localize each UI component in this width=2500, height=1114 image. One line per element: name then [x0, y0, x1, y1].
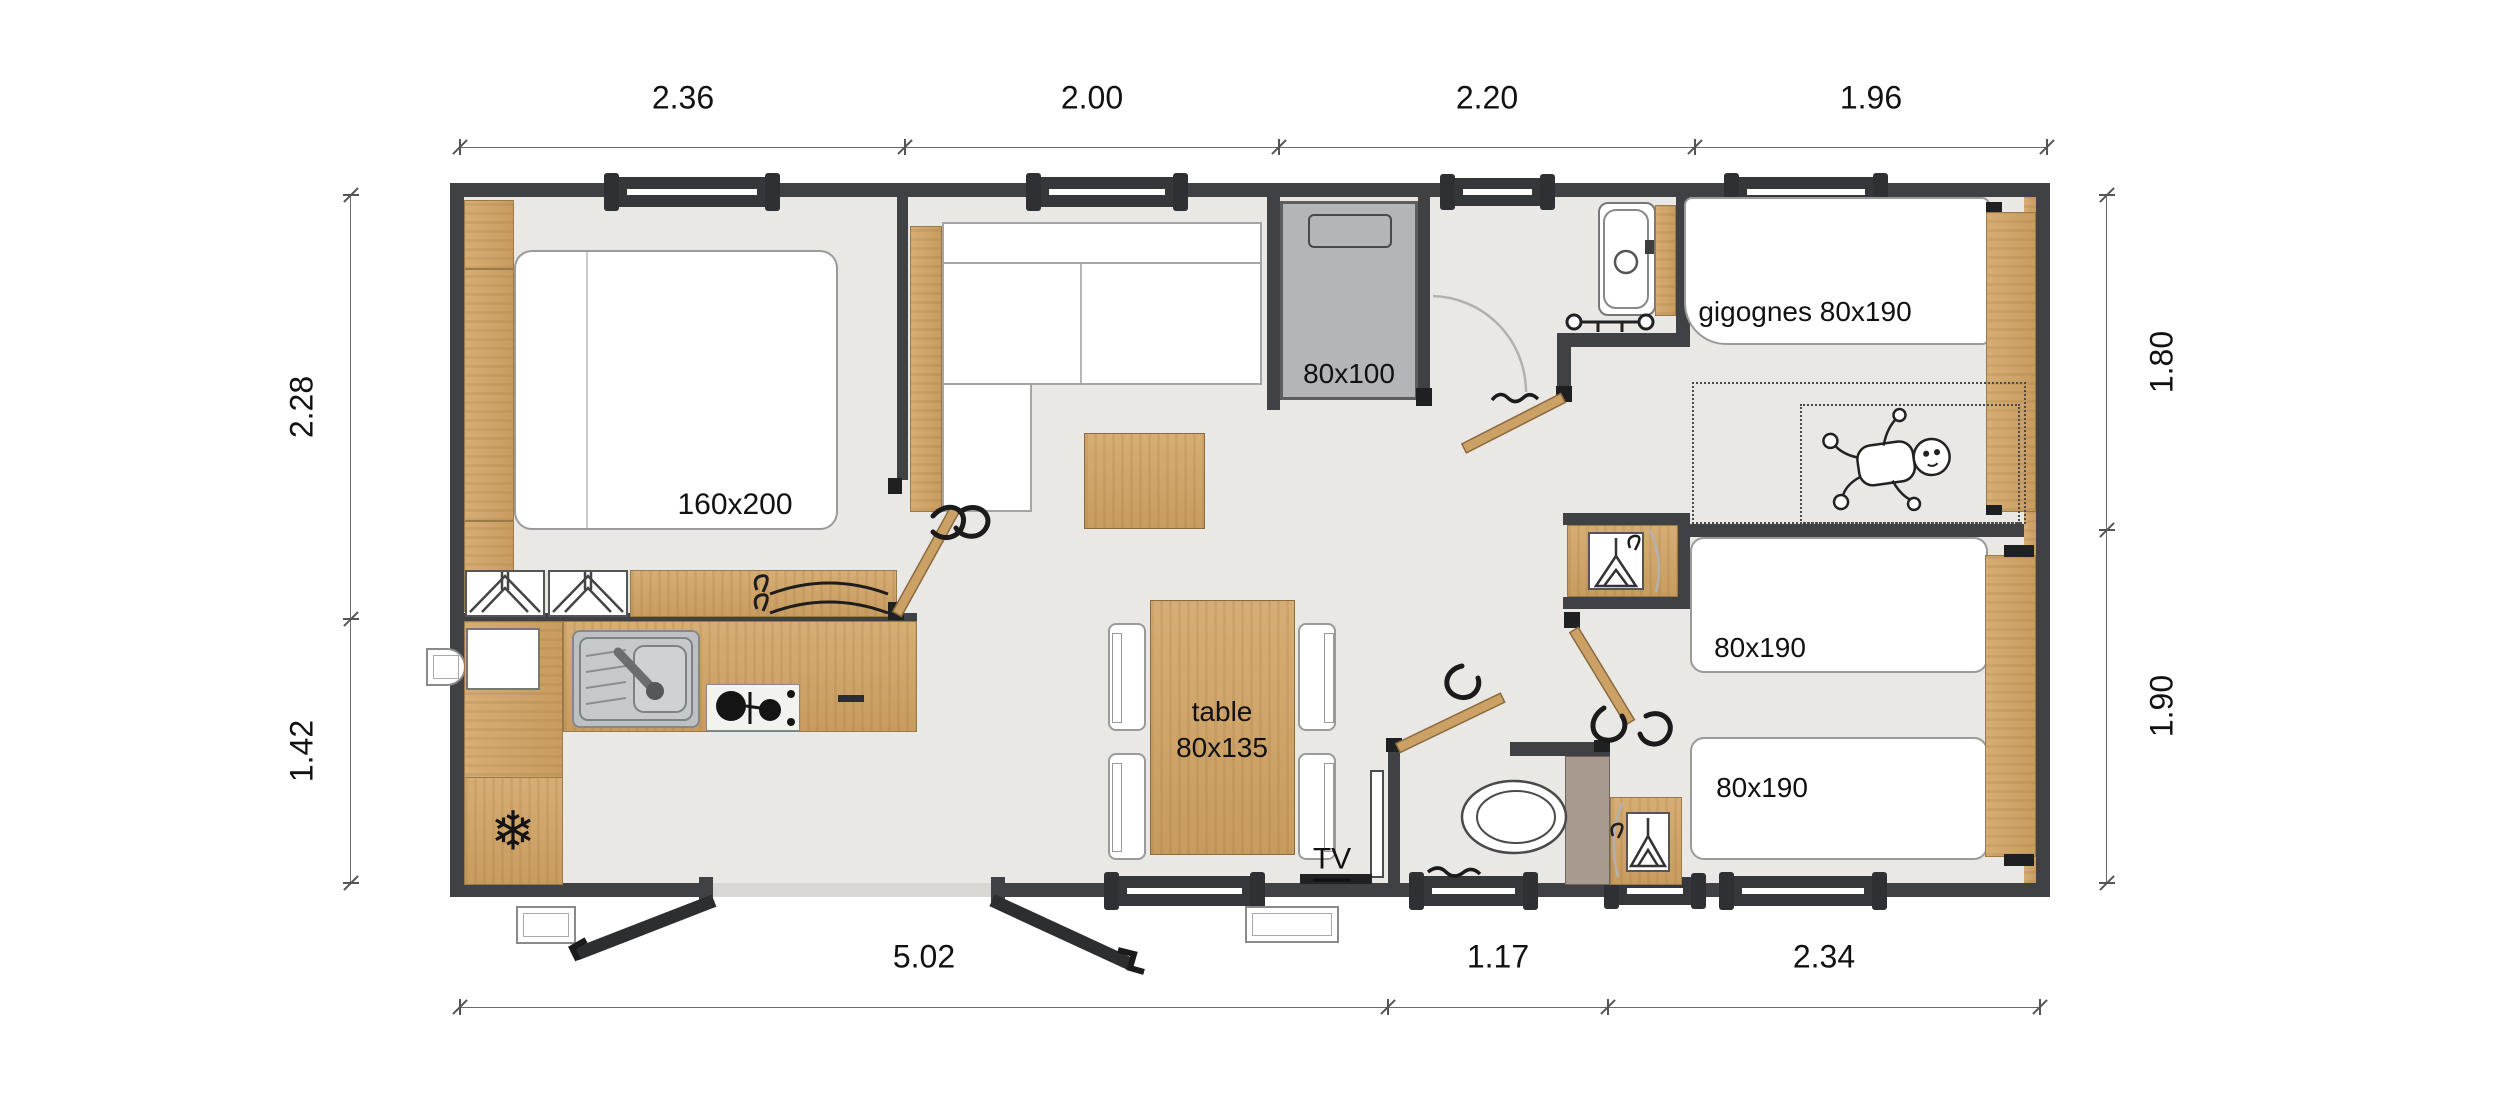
baby-icon: [1820, 403, 1956, 521]
shoe-rack-icon: [470, 572, 623, 612]
bay-door-leaves: [582, 903, 1126, 962]
dim-right-1: 1.80: [2144, 331, 2181, 393]
dim-left-1: 2.28: [284, 376, 321, 438]
master-bedroom-door: [893, 507, 960, 617]
bathroom-sink-icon: [1604, 210, 1654, 308]
dim-line-right: [2106, 195, 2107, 883]
door-handle-icon: [1492, 394, 1538, 401]
detail-overlay: [0, 0, 2500, 1114]
wc-fixture-icon: [1428, 868, 1480, 876]
hob-icon: [716, 690, 795, 726]
hanger-icon: [1631, 818, 1665, 866]
closet-door-arc: [1650, 530, 1659, 592]
cabinet-door-arc: [1614, 803, 1622, 877]
dim-top-1: 2.36: [652, 80, 714, 117]
dim-right-2: 1.90: [2144, 675, 2181, 737]
dim-line-bottom: [460, 1007, 2040, 1008]
kitchen-sink-icon: [580, 638, 692, 720]
door-swing-arc: [1433, 296, 1526, 392]
dim-line-top: [460, 147, 2047, 148]
dim-top-2: 2.00: [1061, 80, 1123, 117]
dim-top-3: 2.20: [1456, 80, 1518, 117]
towel-rail-icon: [1567, 315, 1653, 332]
dim-top-4: 1.96: [1840, 80, 1902, 117]
toilet-icon: [1462, 781, 1566, 853]
dim-bottom-2: 1.17: [1467, 939, 1529, 976]
dim-line-left: [350, 195, 351, 883]
floor-plan: 160x200 ❄ 80x100 table 80x135 TV gigogne…: [0, 0, 2500, 1114]
hanger-hook-icon: [1612, 824, 1623, 838]
dim-left-2: 1.42: [284, 720, 321, 782]
dim-bottom-3: 2.34: [1793, 939, 1855, 976]
dim-bottom-1: 5.02: [893, 939, 955, 976]
wc-door: [1396, 693, 1505, 752]
door-handle-icon: [1640, 714, 1670, 744]
hanger-rail-icon: [755, 576, 888, 613]
door-handle-icon: [1447, 666, 1479, 698]
hanger-hook-icon: [1629, 536, 1640, 550]
door-handle-icon: [956, 507, 988, 536]
